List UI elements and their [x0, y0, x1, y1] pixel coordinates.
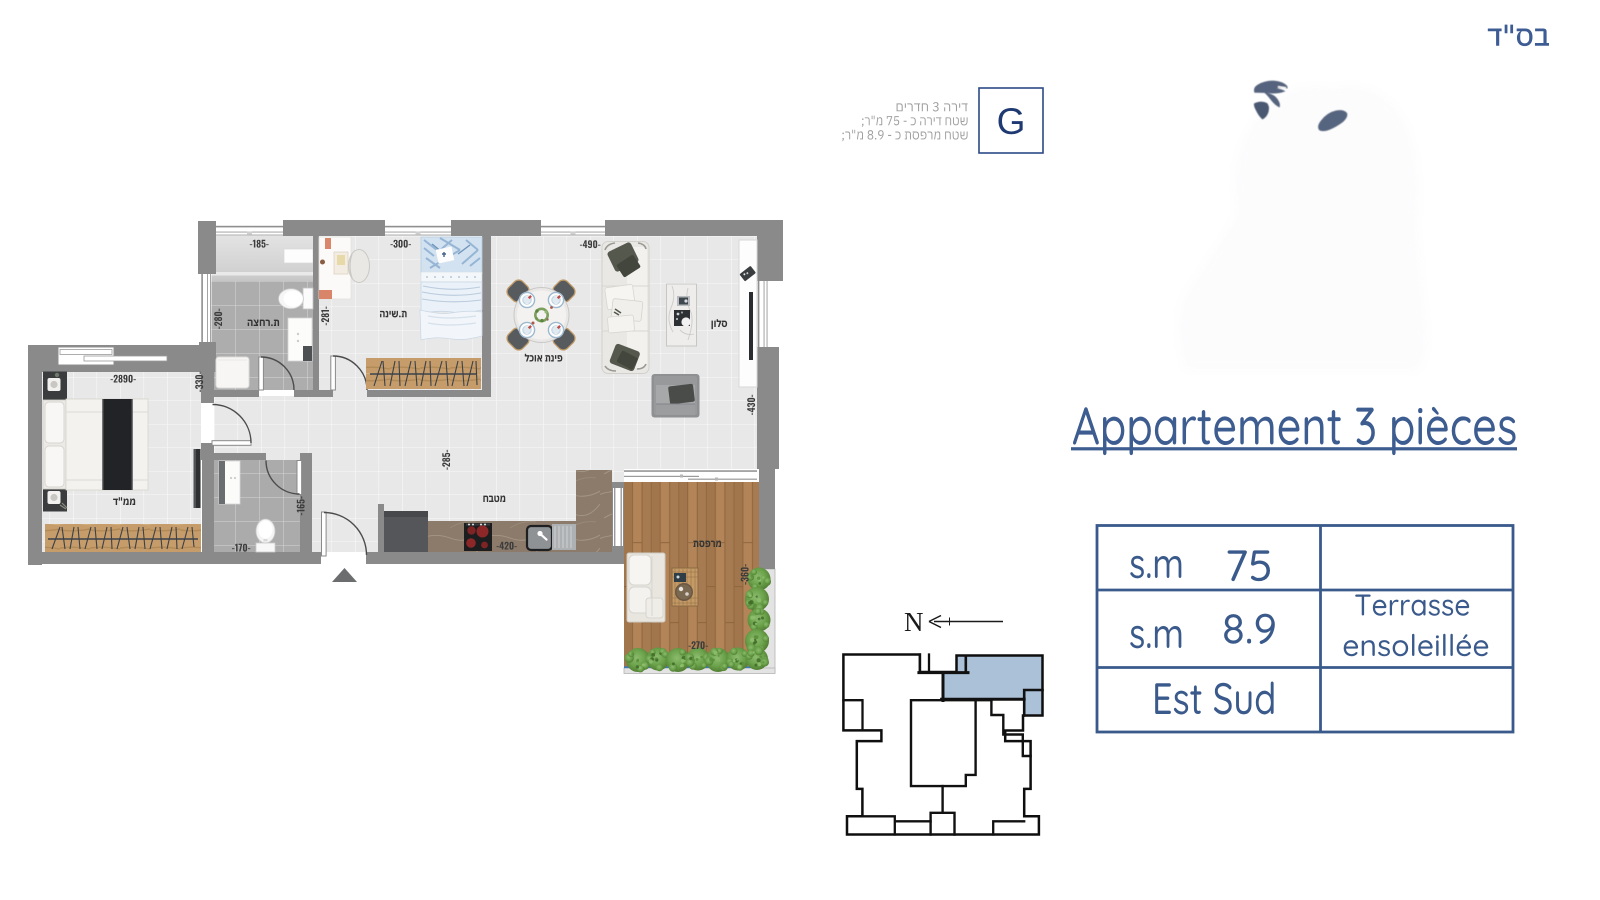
- svg-text:G: G: [997, 101, 1026, 142]
- svg-text:N: N: [904, 607, 924, 637]
